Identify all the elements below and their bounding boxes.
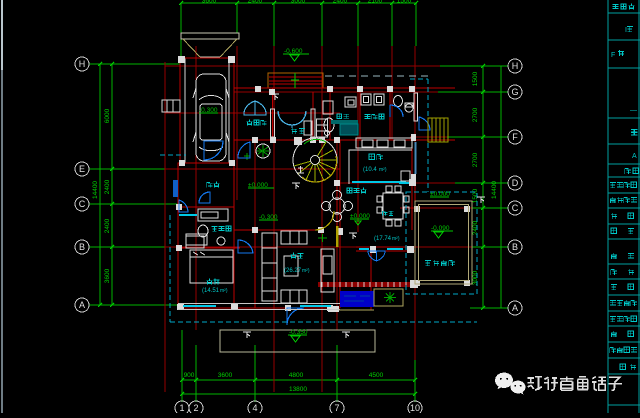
svg-text:4800: 4800 bbox=[289, 372, 304, 379]
svg-text:B: B bbox=[512, 242, 518, 252]
svg-text:(10.4: (10.4 bbox=[363, 167, 377, 173]
svg-text:1500: 1500 bbox=[472, 188, 479, 203]
svg-text:m²): m²) bbox=[392, 236, 400, 242]
svg-text:2700: 2700 bbox=[472, 107, 479, 122]
svg-text:6000: 6000 bbox=[104, 108, 111, 123]
svg-text:7: 7 bbox=[334, 403, 339, 413]
svg-text:A: A bbox=[632, 153, 637, 160]
svg-text:4500: 4500 bbox=[369, 372, 384, 379]
svg-text:14400: 14400 bbox=[491, 181, 498, 199]
svg-text:C: C bbox=[512, 203, 519, 213]
svg-text:2400: 2400 bbox=[104, 179, 111, 194]
svg-text:A: A bbox=[512, 303, 518, 313]
svg-text:E: E bbox=[79, 164, 85, 174]
svg-text:H: H bbox=[79, 59, 86, 69]
svg-text:m²): m²) bbox=[302, 268, 310, 274]
svg-text:A: A bbox=[79, 300, 85, 310]
svg-text:(14.51: (14.51 bbox=[202, 288, 220, 294]
svg-text:2400: 2400 bbox=[472, 220, 479, 235]
svg-text:4: 4 bbox=[252, 403, 257, 413]
svg-text:3000: 3000 bbox=[472, 270, 479, 285]
svg-text:3000: 3000 bbox=[291, 0, 306, 5]
svg-text:F: F bbox=[611, 52, 615, 59]
svg-text:14400: 14400 bbox=[92, 181, 99, 199]
svg-text:(26.27: (26.27 bbox=[284, 268, 302, 274]
svg-text:3600: 3600 bbox=[218, 372, 233, 379]
svg-text:m²): m²) bbox=[220, 288, 228, 294]
svg-text:13800: 13800 bbox=[289, 386, 307, 393]
svg-text:—: — bbox=[630, 107, 637, 114]
svg-text:1500: 1500 bbox=[397, 0, 412, 5]
svg-text:2400: 2400 bbox=[333, 0, 348, 5]
svg-text:B: B bbox=[79, 242, 85, 252]
svg-text:10: 10 bbox=[410, 403, 420, 413]
svg-text:G: G bbox=[511, 87, 518, 97]
svg-text:C: C bbox=[79, 199, 86, 209]
svg-text:2700: 2700 bbox=[472, 152, 479, 167]
svg-text:1: 1 bbox=[179, 403, 184, 413]
svg-text:I: I bbox=[625, 27, 627, 34]
svg-text:2: 2 bbox=[193, 403, 198, 413]
svg-text:1500: 1500 bbox=[472, 71, 479, 86]
svg-text:900: 900 bbox=[184, 372, 195, 379]
svg-text:2400: 2400 bbox=[104, 218, 111, 233]
svg-text:H: H bbox=[512, 61, 519, 71]
svg-text:2100: 2100 bbox=[368, 0, 383, 5]
svg-text:m²): m²) bbox=[379, 167, 387, 173]
svg-text:2400: 2400 bbox=[248, 0, 263, 5]
svg-text:F: F bbox=[512, 132, 518, 142]
svg-text:3600: 3600 bbox=[202, 0, 217, 5]
svg-text:3600: 3600 bbox=[104, 268, 111, 283]
svg-text:(17.74: (17.74 bbox=[374, 236, 392, 242]
svg-text:D: D bbox=[512, 178, 519, 188]
